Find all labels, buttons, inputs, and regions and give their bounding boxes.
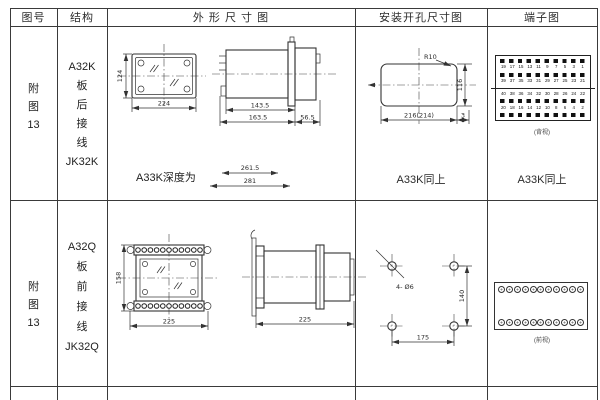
terminal-number: 20 [499,106,508,111]
dimension-175: 175 [392,330,454,346]
fig-no-line: 13 [27,120,39,131]
fig-no-line: 附 [28,84,39,95]
structure-line: 后 [77,100,88,111]
fig-no-line: 图 [28,102,39,113]
row1-terminal-block: 191715131197531 39373533312927252321 403… [495,55,591,121]
table-border-bottom [10,386,598,387]
terminal-number: 11 [534,65,543,70]
terminal-block-divider [491,88,595,89]
structure-line: 前 [77,282,88,293]
terminal-number: 37 [508,79,517,84]
dim-label-4-d6: 4- Ø6 [396,283,414,291]
dimension-224: 224 [132,98,196,112]
row2-side-view-drawing: 225 [238,226,373,341]
header-terminal: 端子图 [487,8,597,26]
row1-fig-no: 附图13 [10,84,57,131]
terminal-circle [498,319,505,326]
col-line-3 [355,8,356,400]
terminal-number: 31 [534,79,543,84]
terminal-number: 35 [517,79,526,84]
datasheet-page: 图号 结构 外 形 尺 寸 图 安装开孔尺寸图 端子图 附图13 A32K板后接… [0,0,600,400]
structure-line: 接 [77,302,88,313]
structure-line: 接 [77,119,88,130]
dimension-163-5: 163.5 [220,96,295,126]
terminal-number: 7 [552,65,561,70]
structure-line: 板 [77,262,88,273]
terminal-circle [498,286,505,293]
terminal-number: 4 [569,106,578,111]
terminal-number: 28 [552,92,561,97]
structure-line: JK32Q [65,342,99,353]
terminal-circle [577,286,584,293]
terminal-dot-row [500,113,586,117]
terminal-circle [514,286,521,293]
terminal-number: 15 [517,65,526,70]
row1-side-view-drawing: 143.5 163.5 56.5 [208,30,343,142]
terminal-number: 13 [525,65,534,70]
dim-label-224: 224 [158,100,170,108]
terminal-circle [553,319,560,326]
terminal-circle [514,319,521,326]
terminal-number: 23 [569,79,578,84]
terminal-number-row: 2018161412108642 [499,106,587,111]
terminal-circle [506,286,513,293]
terminal-circle [561,319,568,326]
row1-terminal-caption: (背视) [487,127,597,136]
terminal-number: 17 [508,65,517,70]
terminal-number: 33 [525,79,534,84]
terminal-number: 1 [578,65,587,70]
body-outline [251,230,354,316]
terminal-number: 36 [517,92,526,97]
structure-line: A32Q [68,242,96,253]
dim-label-56-5: 56.5 [300,114,314,122]
terminal-circle [530,286,537,293]
terminal-circle [530,319,537,326]
fig-no-line: 13 [27,318,39,329]
terminal-number: 30 [543,92,552,97]
terminal-number: 29 [543,79,552,84]
dim-label-3: 3 [461,112,465,120]
row1-terminal-same-as: A33K同上 [487,171,597,187]
row1-install-same-as: A33K同上 [355,171,487,187]
dim-label-281: 281 [244,177,256,185]
terminal-number: 12 [534,106,543,111]
col-line-2 [107,8,108,400]
structure-line: 板 [77,81,88,92]
dim-label-124: 124 [116,70,124,82]
terminal-number: 14 [525,106,534,111]
terminal-number: 39 [499,79,508,84]
terminal-number: 6 [561,106,570,111]
table-border-left [10,8,11,400]
terminal-circle [537,286,544,293]
structure-line: JK32K [66,157,98,168]
terminal-number: 18 [508,106,517,111]
dimension-56-5: 56.5 [295,100,320,126]
dim-label-140: 140 [458,290,466,302]
row-separator [10,200,598,201]
dim-label-143-5: 143.5 [251,102,270,110]
structure-line: 线 [77,322,88,333]
dimension-158: 158 [115,245,135,311]
dimension-225-side: 225 [256,301,354,328]
dim-label-175: 175 [417,334,429,342]
holes-callout: 4- Ø6 [376,250,414,291]
dim-label-r10: R10 [424,53,437,61]
row1-depth-note: A33K深度为 261.5 281 [136,162,300,192]
row1-install-cutout-drawing: R10 116 216(214) 3 [362,42,487,142]
depth-note-label: A33K深度为 [136,169,196,185]
terminal-number: 40 [499,92,508,97]
terminal-circle [577,319,584,326]
dimension-140: 140 [458,266,472,326]
terminal-circle [569,286,576,293]
header-fig-no: 图号 [10,8,57,26]
terminal-number: 19 [499,65,508,70]
terminal-number: 10 [543,106,552,111]
structure-line: A32K [69,62,96,73]
dim-label-225-side: 225 [299,316,311,324]
terminal-dot-row [500,59,586,63]
dim-label-261-5: 261.5 [241,164,260,172]
terminal-circle [506,319,513,326]
row2-structure: A32Q板前接线JK32Q [57,242,107,353]
terminal-number: 3 [569,65,578,70]
dim-label-163-5: 163.5 [249,114,268,122]
terminal-number: 8 [552,106,561,111]
dim-label-216: 216(214) [404,112,434,120]
fig-no-line: 图 [28,300,39,311]
row2-terminal-caption: (前视) [487,335,597,344]
terminal-number: 5 [561,65,570,70]
terminal-circle [561,286,568,293]
terminal-number: 22 [578,92,587,97]
terminal-circle [553,286,560,293]
terminal-circle-row [498,286,584,293]
terminal-number: 24 [569,92,578,97]
terminal-number: 25 [561,79,570,84]
row2-fig-no: 附图13 [10,282,57,329]
terminal-circle [569,319,576,326]
row2-front-view-drawing: 158 225 [110,222,225,347]
header-outline: 外 形 尺 寸 图 [107,8,355,26]
table-border-right [597,8,598,400]
body-outline [219,37,320,106]
terminal-number: 27 [552,79,561,84]
header-structure: 结构 [57,8,107,26]
terminal-circle-row [498,319,584,326]
fig-no-line: 附 [28,282,39,293]
terminal-circle [522,319,529,326]
terminal-circle [537,319,544,326]
row1-front-view-drawing: 124 224 [110,36,210,148]
terminal-circle [545,319,552,326]
header-separator [10,26,598,27]
terminal-dot-row [500,73,586,77]
terminal-number-row: 39373533312927252321 [499,79,587,84]
dimension-216: 216(214) 3 [381,106,469,124]
terminal-number: 21 [578,79,587,84]
structure-line: 线 [77,138,88,149]
row2-install-holes-drawing: 4- Ø6 140 175 [360,232,485,357]
dim-label-158: 158 [115,272,123,284]
depth-dimension-arrows: 261.5 281 [200,162,300,192]
terminal-circle [522,286,529,293]
row1-structure: A32K板后接线JK32K [57,62,107,168]
terminal-number: 2 [578,106,587,111]
terminal-dot-row [500,99,586,103]
terminal-number-row: 191715131197531 [499,65,587,70]
terminal-number: 9 [543,65,552,70]
terminal-number-row: 40383634323028262422 [499,92,587,97]
terminal-number: 34 [525,92,534,97]
terminal-circle [545,286,552,293]
terminal-number: 38 [508,92,517,97]
terminal-number: 32 [534,92,543,97]
terminal-number: 16 [517,106,526,111]
dim-label-225-front: 225 [163,318,175,326]
header-install: 安装开孔尺寸图 [355,8,487,26]
terminal-number: 26 [561,92,570,97]
dim-label-116: 116 [456,79,464,91]
row2-terminal-block [494,282,588,330]
